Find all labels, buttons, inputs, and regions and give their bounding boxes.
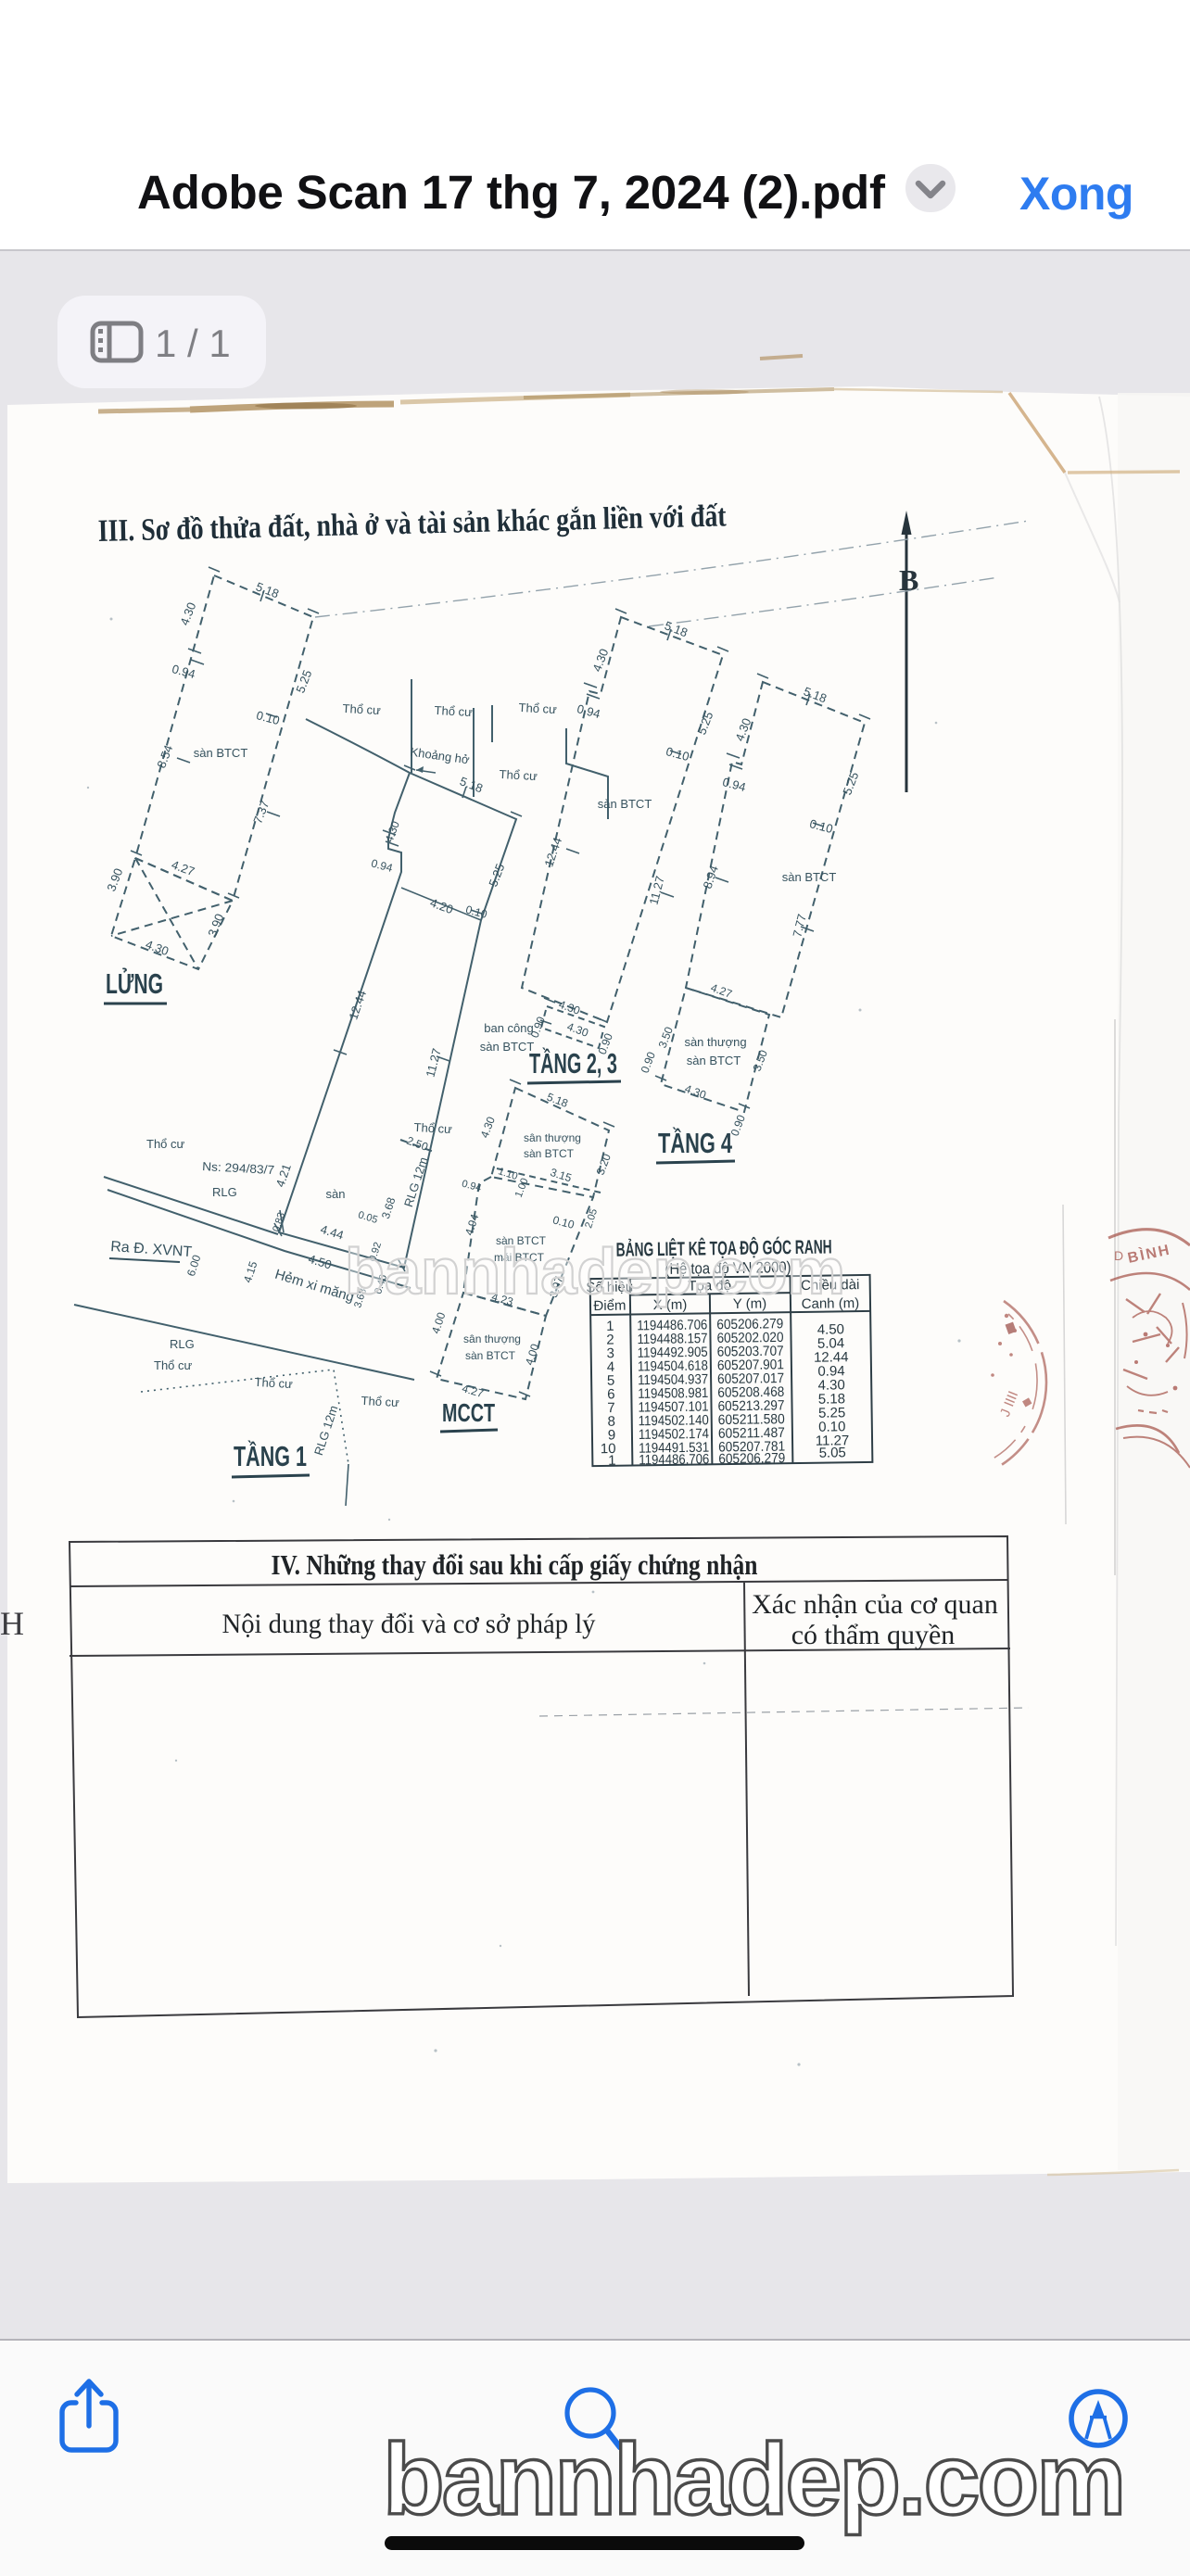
svg-text:sàn BTCT: sàn BTCT <box>465 1349 516 1362</box>
svg-text:IV. Những thay đổi sau khi cấp: IV. Những thay đổi sau khi cấp giấy chứn… <box>272 1548 758 1581</box>
svg-text:sân thượng: sân thượng <box>524 1131 581 1144</box>
svg-text:RLG: RLG <box>212 1185 237 1199</box>
svg-text:sân thượng: sân thượng <box>463 1332 521 1345</box>
svg-text:Thổ cư: Thổ cư <box>146 1137 185 1151</box>
svg-text:Thổ cư: Thổ cư <box>413 1120 452 1136</box>
svg-text:Thổ cư: Thổ cư <box>361 1394 399 1409</box>
svg-text:bannhadep.com: bannhadep.com <box>345 1235 845 1307</box>
svg-text:Thổ cư: Thổ cư <box>434 703 473 719</box>
svg-text:Xác nhận của cơ quan: Xác nhận của cơ quan <box>752 1589 998 1620</box>
svg-text:TẦNG 2, 3: TẦNG 2, 3 <box>529 1047 617 1080</box>
svg-text:ban công: ban công <box>484 1021 534 1035</box>
svg-text:Nội dung thay đổi và cơ sở phá: Nội dung thay đổi và cơ sở pháp lý <box>222 1609 596 1639</box>
svg-text:605206.279: 605206.279 <box>718 1450 785 1467</box>
svg-text:1 / 1: 1 / 1 <box>155 322 231 365</box>
svg-text:Thổ cư: Thổ cư <box>154 1358 193 1372</box>
svg-text:H: H <box>0 1605 24 1642</box>
svg-text:5.05: 5.05 <box>819 1445 846 1460</box>
svg-text:sàn thượng: sàn thượng <box>684 1035 746 1049</box>
svg-text:sàn BTCT: sàn BTCT <box>598 797 652 811</box>
svg-text:sàn BTCT: sàn BTCT <box>687 1054 741 1067</box>
svg-text:sàn BTCT: sàn BTCT <box>194 746 248 760</box>
svg-text:LỬNG: LỬNG <box>106 966 163 1000</box>
svg-text:sàn: sàn <box>326 1187 346 1201</box>
svg-text:1194486.706: 1194486.706 <box>639 1451 709 1468</box>
svg-text:D: D <box>1114 1248 1123 1263</box>
svg-text:có thẩm quyền: có thẩm quyền <box>791 1620 956 1650</box>
svg-text:sàn BTCT: sàn BTCT <box>782 870 837 884</box>
svg-text:Thổ cư: Thổ cư <box>254 1375 293 1391</box>
svg-text:sàn BTCT: sàn BTCT <box>480 1040 535 1054</box>
svg-text:TẦNG 1: TẦNG 1 <box>234 1440 307 1472</box>
svg-text:MCCT: MCCT <box>442 1398 495 1427</box>
svg-text:sàn BTCT: sàn BTCT <box>524 1147 575 1160</box>
svg-text:RLG: RLG <box>170 1337 195 1351</box>
svg-text:TẦNG 4: TẦNG 4 <box>658 1127 733 1159</box>
svg-text:Thổ cư: Thổ cư <box>499 767 538 783</box>
svg-text:1: 1 <box>608 1453 616 1469</box>
svg-text:Thổ cư: Thổ cư <box>342 701 381 717</box>
svg-text:Thổ cư: Thổ cư <box>518 701 557 716</box>
